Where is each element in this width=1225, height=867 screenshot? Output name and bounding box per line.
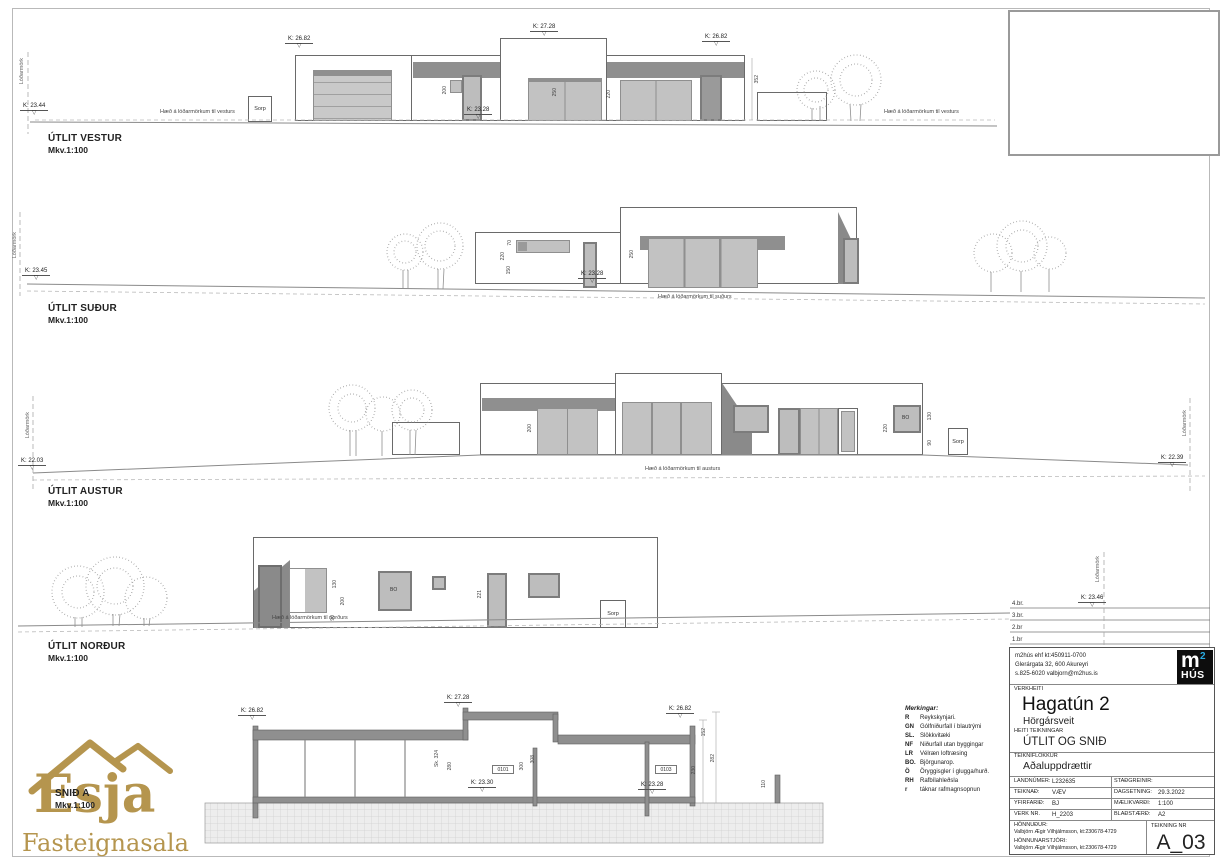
honnunarstjori-name: Valbjörn Ægir Vilhjálmsson, kt:230678-47… <box>1014 846 1117 851</box>
landnumer-label: LANDNÚMER: <box>1014 779 1050 785</box>
company-line-3: s.825-6020 valbjorn@m2hus.is <box>1015 671 1098 677</box>
teiknad-value: VÆV <box>1052 790 1066 796</box>
north-lot-boundary-label: Lóðarmörk <box>1096 556 1102 582</box>
west-level-parapet-right: K: 26.82 ▽ <box>702 34 730 47</box>
maelikvardi-label: MÆLIKVARÐI: <box>1114 801 1150 807</box>
east-garage-door <box>622 402 712 455</box>
west-sorp-label: Sorp <box>254 106 266 112</box>
level-triangle-icon: ▽ <box>18 466 46 471</box>
dim: 220 <box>884 424 889 432</box>
north-sorp-label: Sorp <box>607 611 619 617</box>
esja-subtitle: Fasteignasala <box>22 831 189 855</box>
verknr-value: H_2203 <box>1052 812 1073 818</box>
stadgreinir-label: STAÐGREINIR: <box>1114 779 1153 785</box>
south-strip-window-vent <box>518 242 527 251</box>
east-door <box>778 408 800 455</box>
bladstaerd-value: A2 <box>1158 812 1165 818</box>
east-bo-label: BO <box>902 416 909 421</box>
verkheiti-label: VERKHEITI <box>1014 687 1043 693</box>
dim: 90 <box>331 615 336 621</box>
section-level-floor-left: K: 23.30 ▽ <box>468 780 496 793</box>
dim: 221 <box>478 590 483 598</box>
level-triangle-icon: ▽ <box>444 703 472 708</box>
west-door-2 <box>700 75 722 121</box>
north-bo-label: BO <box>390 588 397 593</box>
teikning-nr-label: TEIKNING NR <box>1151 824 1186 830</box>
dim: 70 <box>508 240 513 246</box>
dim: 352 <box>755 75 760 83</box>
section-room-tag-left: 0101 <box>492 765 514 774</box>
dagsetning-value: 29.3.2022 <box>1158 790 1185 796</box>
dim: 308 <box>531 755 536 763</box>
legend-row: SL.Slökkvitæki <box>905 732 1025 741</box>
north-window-1-panel <box>290 569 305 612</box>
yfirfarid-value: BJ <box>1052 801 1059 807</box>
honnunarstjori-label: HÖNNUNARSTJÓRI: <box>1014 839 1067 845</box>
level-triangle-icon: ▽ <box>464 115 492 120</box>
legend-title: Merkingar: <box>905 705 1025 712</box>
north-elevation-title: ÚTLIT NORÐUR <box>48 641 125 652</box>
south-ground-note: Hæð á lóðarmörkum til suðurs <box>658 295 732 301</box>
level-triangle-icon: ▽ <box>638 790 666 795</box>
bladstaerd-label: BLAÐSTÆRÐ: <box>1114 812 1150 818</box>
m2hus-logo-m: m <box>1181 650 1200 671</box>
west-fascia-right <box>607 62 744 78</box>
legend-row: BO.Björgunarop. <box>905 759 1025 768</box>
legend-row: ÖÖryggisgler í glugga/hurð. <box>905 768 1025 777</box>
west-slider-2 <box>620 80 692 121</box>
dim: 220 <box>501 252 506 260</box>
level-triangle-icon: ▽ <box>530 32 558 37</box>
north-level-right: K: 23.46 ▽ <box>1078 595 1106 608</box>
teiknad-label: TEIKNAÐ: <box>1014 790 1039 796</box>
company-line-1: m2hús ehf kt:450911-0700 <box>1015 653 1086 659</box>
dim: 250 <box>630 250 635 258</box>
south-level-door: K: 23.28 ▽ <box>578 271 606 284</box>
level-triangle-icon: ▽ <box>1078 603 1106 608</box>
flokkur-label: TEIKNIFLOKKUR <box>1014 754 1058 760</box>
dim: 250 <box>553 88 558 96</box>
dagsetning-label: DAGSETNING: <box>1114 790 1152 796</box>
east-slider-right <box>800 408 838 455</box>
south-door-right <box>843 238 859 284</box>
north-elevation-scale: Mkv.1:100 <box>48 653 88 663</box>
west-level-ground-left: K: 23.44 ▽ <box>20 103 48 116</box>
honnudur-label: HÖNNUÐUR: <box>1014 823 1048 829</box>
west-level-door: K: 23.28 ▽ <box>464 107 492 120</box>
east-sorp-label: Sorp <box>952 439 964 445</box>
east-level-ground-right: K: 22.39 ▽ <box>1158 455 1186 468</box>
legend-row: GNGólfniðurfall í blautrými <box>905 723 1025 732</box>
west-small-window <box>450 80 462 93</box>
dim: 200 <box>341 597 346 605</box>
verknr-label: VERK NR. <box>1014 812 1040 818</box>
legend-row: RReykskynjari. <box>905 714 1025 723</box>
east-sorp-box: Sorp <box>948 428 968 455</box>
west-elevation-scale: Mkv.1:100 <box>48 145 88 155</box>
esja-name: Esja <box>34 769 155 821</box>
legend-row: rtáknar rafmagnsopnun <box>905 786 1025 795</box>
m2hus-logo: m 2 HÚS <box>1177 650 1213 684</box>
west-garage-door <box>313 70 392 121</box>
m2hus-logo-2: 2 <box>1200 652 1206 662</box>
west-elevation-title: ÚTLIT VESTUR <box>48 133 122 144</box>
dim: 152 <box>702 728 707 736</box>
esja-watermark-logo: Esja Fasteignasala <box>20 725 200 860</box>
section-title: SNIÐ A <box>55 788 90 799</box>
south-lot-boundary-label: Lóðarmörk <box>13 232 19 258</box>
heiti-label: HEITI TEIKNINGAR <box>1014 729 1063 735</box>
east-lot-boundary-label-right: Lóðarmörk <box>1183 410 1189 436</box>
section-level-parapet-left: K: 26.82 ▽ <box>238 708 266 721</box>
m2hus-logo-hus: HÚS <box>1181 670 1205 681</box>
level-triangle-icon: ▽ <box>20 111 48 116</box>
section-room-tag-right: 0103 <box>655 765 677 774</box>
dim: 220 <box>607 90 612 98</box>
revision-row-3: 3.br. <box>1012 613 1024 619</box>
north-window-3 <box>528 573 560 598</box>
south-elevation-title: ÚTLIT SUÐUR <box>48 303 117 314</box>
section-scale: Mkv.1:100 <box>55 800 95 810</box>
north-ground-note: Hæð á lóðarmörkum til norðurs <box>272 616 348 622</box>
company-line-2: Glerárgata 32, 600 Akureyri <box>1015 662 1088 668</box>
west-lot-boundary-label: Lóðarmörk <box>20 58 26 84</box>
honnudur-name: Valbjörn Ægir Vilhjálmsson, kt:230678-47… <box>1014 830 1117 835</box>
landnumer-value: L232635 <box>1052 779 1075 785</box>
west-ground-note-right: Hæð á lóðarmörkum til vesturs <box>884 110 959 116</box>
flokkur: Aðaluppdrættir <box>1023 761 1092 772</box>
west-sorp-box: Sorp <box>248 96 272 122</box>
dim: Sk. 324 <box>435 750 440 767</box>
municipality: Hörgársveit <box>1023 717 1074 727</box>
level-triangle-icon: ▽ <box>238 716 266 721</box>
level-triangle-icon: ▽ <box>22 276 50 281</box>
north-small-window <box>432 576 446 590</box>
south-glazing <box>648 238 758 288</box>
section-level-tower: K: 27.28 ▽ <box>444 695 472 708</box>
revision-row-1: 1.br <box>1012 637 1022 643</box>
section-level-floor-right: K: 23.28 ▽ <box>638 782 666 795</box>
title-block: m2hús ehf kt:450911-0700 Glerárgata 32, … <box>1009 647 1215 855</box>
east-elevation-scale: Mkv.1:100 <box>48 498 88 508</box>
location-map-placeholder-box <box>1008 10 1220 156</box>
level-triangle-icon: ▽ <box>1158 463 1186 468</box>
dim: 110 <box>762 780 767 788</box>
east-door-leaf <box>841 411 855 452</box>
legend-row: NFNiðurfall utan byggingar <box>905 741 1025 750</box>
dim: 200 <box>443 86 448 94</box>
maelikvardi-value: 1:100 <box>1158 801 1173 807</box>
legend: Merkingar: RReykskynjari. GNGólfniðurfal… <box>905 705 1025 795</box>
dim: 150 <box>507 266 512 274</box>
level-triangle-icon: ▽ <box>285 44 313 49</box>
east-level-ground-left: K: 22.03 ▽ <box>18 458 46 471</box>
dim: 282 <box>711 754 716 762</box>
west-level-parapet-left: K: 26.82 ▽ <box>285 36 313 49</box>
drawing-sheet: Sorp K: 26.82 ▽ K: 27.28 ▽ K: 26.82 ▽ K:… <box>0 0 1225 867</box>
revision-row-2: 2.br <box>1012 625 1022 631</box>
yfirfarid-label: YFIRFARIÐ: <box>1014 801 1044 807</box>
east-ground-note: Hæð á lóðarmörkum til austurs <box>645 467 720 473</box>
east-wedge-window <box>733 405 769 433</box>
dim: 280 <box>448 762 453 770</box>
east-slider-left <box>537 408 598 455</box>
north-sorp-box: Sorp <box>600 600 626 628</box>
dim: 90 <box>928 440 933 446</box>
dim: 130 <box>333 580 338 588</box>
section-level-parapet-right: K: 26.82 ▽ <box>666 706 694 719</box>
south-level-ground-left: K: 23.45 ▽ <box>22 268 50 281</box>
level-triangle-icon: ▽ <box>702 42 730 47</box>
revision-row-4: 4.br. <box>1012 601 1024 607</box>
dim: 300 <box>520 762 525 770</box>
east-elevation-title: ÚTLIT AUSTUR <box>48 486 123 497</box>
west-garage-lintel <box>313 70 392 76</box>
level-triangle-icon: ▽ <box>578 279 606 284</box>
west-ground-note-left: Hæð á lóðarmörkum til vesturs <box>160 110 235 116</box>
dim: 230 <box>692 766 697 774</box>
west-slider-1 <box>528 78 602 121</box>
west-slider-1-head <box>528 78 602 82</box>
dim: 130 <box>928 412 933 420</box>
legend-row: LRVélræn loftræsing <box>905 750 1025 759</box>
level-triangle-icon: ▽ <box>666 714 694 719</box>
west-level-tower: K: 27.28 ▽ <box>530 24 558 37</box>
west-fascia-left <box>413 62 500 78</box>
drawing-title: ÚTLIT OG SNIÐ <box>1023 737 1107 749</box>
east-low-wall <box>392 422 460 455</box>
west-low-wall <box>757 92 827 121</box>
south-elevation-scale: Mkv.1:100 <box>48 315 88 325</box>
legend-row: RHRafbílahleðsla <box>905 777 1025 786</box>
teikning-nr: A_03 <box>1149 832 1213 853</box>
level-triangle-icon: ▽ <box>468 788 496 793</box>
north-door-2 <box>487 573 507 628</box>
dim: 200 <box>528 424 533 432</box>
east-lot-boundary-label-left: Lóðarmörk <box>26 412 32 438</box>
project-name: Hagatún 2 <box>1022 695 1110 714</box>
